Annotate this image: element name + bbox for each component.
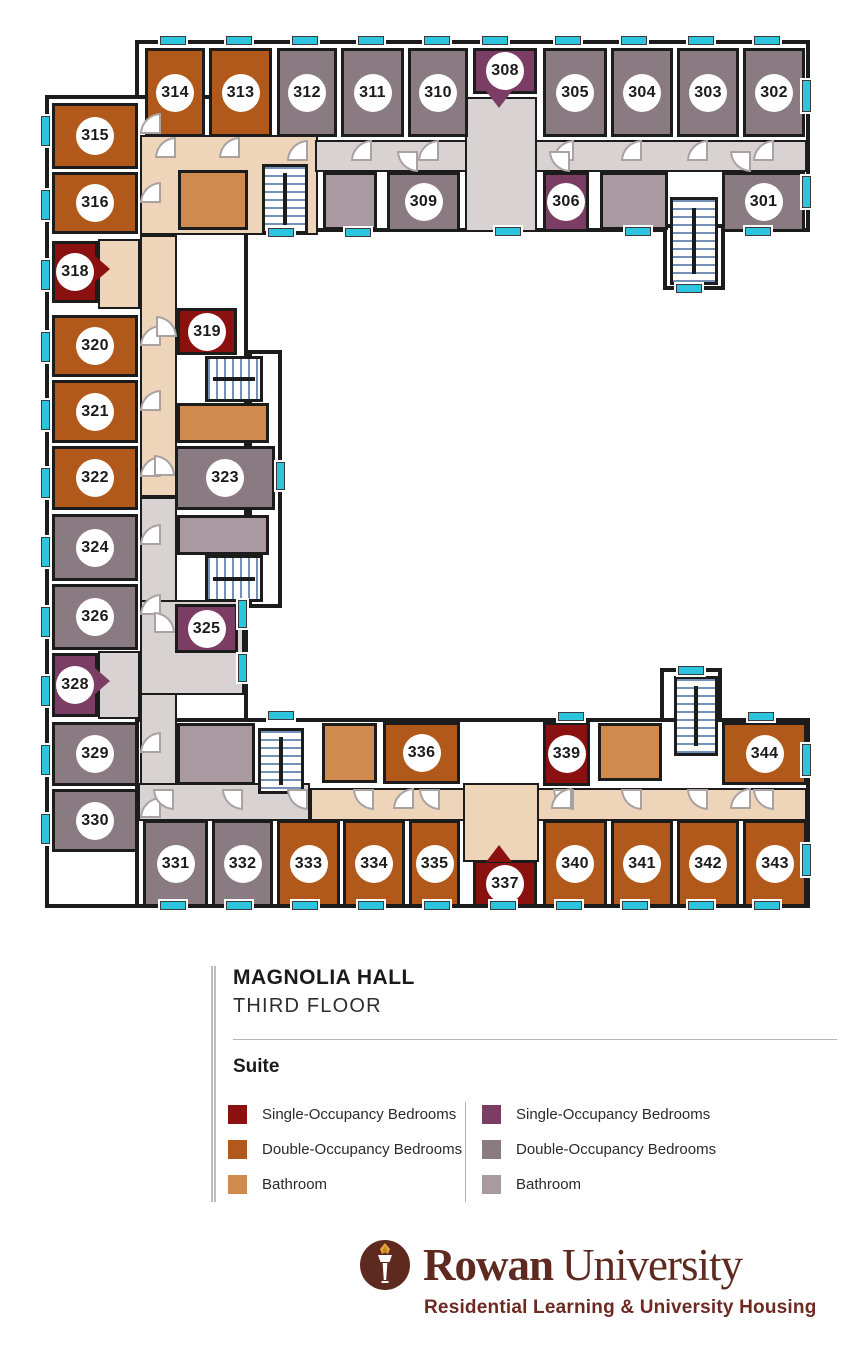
room-302: 302 [743,48,805,137]
room-number-badge: 309 [405,183,443,221]
room-number-badge: 324 [76,529,114,567]
window [802,80,811,112]
room-313: 313 [209,48,272,137]
room-319: 319 [177,308,237,355]
room-303: 303 [677,48,739,137]
legend-label: Double-Occupancy Bedrooms [262,1141,462,1158]
legend-heading: Suite [233,1056,279,1078]
room-number-badge: 326 [76,598,114,636]
room-334: 334 [343,820,405,907]
title-divider [233,1039,837,1040]
room-337: 337 [473,860,537,907]
brand-tagline: Residential Learning & University Housin… [424,1297,817,1319]
room-324: 324 [52,514,138,581]
window [802,176,811,208]
room-322: 322 [52,446,138,510]
window [292,901,318,910]
stair-rail [213,577,255,581]
floor-subtitle: THIRD FLOOR [233,995,382,1018]
room-number-badge: 318 [56,253,94,291]
room-number-badge: 322 [76,459,114,497]
room-321: 321 [52,380,138,443]
room-number-badge: 337 [486,865,524,903]
room-number-badge: 335 [416,845,454,883]
room-number-badge: 302 [755,74,793,112]
window [41,814,50,844]
room-316: 316 [52,172,138,234]
window [358,36,384,45]
room-number-badge: 344 [746,735,784,773]
room-number-badge: 310 [419,74,457,112]
window [555,36,581,45]
stairwell [205,555,263,602]
window [41,116,50,146]
window [41,537,50,567]
room-number-badge: 325 [188,610,226,648]
window [160,36,186,45]
stair-rail [283,173,287,224]
window [802,744,811,776]
room-number-badge: 343 [756,845,794,883]
legend-item: Bathroom [482,1174,716,1194]
room-305: 305 [543,48,607,137]
window [41,745,50,775]
legend-item: Double-Occupancy Bedrooms [482,1139,716,1159]
window [238,654,247,682]
legend-label: Single-Occupancy Bedrooms [262,1106,456,1123]
room-number-badge: 304 [623,74,661,112]
room-number-badge: 320 [76,327,114,365]
window [424,36,450,45]
room-number-badge: 308 [486,52,524,90]
window [558,712,584,721]
suite-hallway [98,239,140,309]
bathroom [600,172,668,230]
window [41,468,50,498]
room-335: 335 [409,820,460,907]
bathroom [598,723,662,781]
room-309: 309 [387,172,460,232]
room-number-badge: 332 [224,845,262,883]
room-number-badge: 313 [222,74,260,112]
window [754,901,780,910]
stairwell [670,197,718,285]
legend-swatch [482,1140,501,1159]
stairwell [205,356,263,402]
window [424,901,450,910]
room-number-badge: 311 [354,74,392,112]
room-number-badge: 315 [76,117,114,155]
room-325: 325 [175,604,238,653]
floor-plan: 3143133123113103083053043033023153163093… [0,0,861,940]
brand-name-secondary: University [562,1240,742,1290]
legend-swatch [228,1175,247,1194]
room-number-badge: 319 [188,313,226,351]
room-number-badge: 306 [547,183,585,221]
room-number-badge: 328 [56,666,94,704]
floor-plan-page: { "header": { "building": "MAGNOLIA HALL… [0,0,861,1352]
room-306: 306 [543,172,589,232]
room-330: 330 [52,789,138,852]
window [802,844,811,876]
legend-column-divider [465,1102,466,1202]
room-304: 304 [611,48,673,137]
window [41,607,50,637]
torch-icon [360,1240,410,1290]
room-number-badge: 336 [403,734,441,772]
suite-hallway [465,97,537,232]
window [358,901,384,910]
window [688,901,714,910]
room-320: 320 [52,315,138,377]
room-number-badge: 334 [355,845,393,883]
room-332: 332 [212,820,273,907]
window [41,190,50,220]
stair-rail [213,377,255,381]
legend-swatch [228,1105,247,1124]
window [41,260,50,290]
room-number-badge: 340 [556,845,594,883]
room-315: 315 [52,103,138,169]
window [276,462,285,490]
room-328: 328 [52,653,98,717]
window [621,36,647,45]
legend-item: Bathroom [228,1174,462,1194]
window [268,228,294,237]
bathroom [177,723,255,785]
window [226,901,252,910]
room-341: 341 [611,820,673,907]
room-number-badge: 333 [290,845,328,883]
room-342: 342 [677,820,739,907]
room-331: 331 [143,820,208,907]
window [745,227,771,236]
room-number-badge: 330 [76,802,114,840]
window [226,36,252,45]
window [292,36,318,45]
window [678,666,704,675]
room-number-badge: 314 [156,74,194,112]
legend-label: Single-Occupancy Bedrooms [516,1106,710,1123]
room-344: 344 [722,722,807,785]
stairwell [674,676,718,756]
room-number-badge: 331 [157,845,195,883]
legend-item: Single-Occupancy Bedrooms [482,1104,716,1124]
brand-name-primary: Rowan [423,1240,553,1290]
room-312: 312 [277,48,337,137]
legend-label: Double-Occupancy Bedrooms [516,1141,716,1158]
room-number-badge: 316 [76,184,114,222]
window [622,901,648,910]
room-308: 308 [473,48,537,94]
legend-swatch [482,1175,501,1194]
window [345,228,371,237]
stair-rail [694,686,698,745]
legend-column-right: Single-Occupancy BedroomsDouble-Occupanc… [482,1104,716,1209]
legend-swatch [482,1105,501,1124]
window [41,676,50,706]
bathroom [177,403,269,443]
rowan-logo: Rowan University [360,1240,742,1290]
room-343: 343 [743,820,807,907]
legend-label: Bathroom [516,1176,581,1193]
bathroom [178,170,248,230]
room-311: 311 [341,48,404,137]
legend-column-left: Single-Occupancy BedroomsDouble-Occupanc… [228,1104,462,1209]
window [490,901,516,910]
window [556,901,582,910]
room-339: 339 [543,722,590,786]
building-title: MAGNOLIA HALL [233,966,415,990]
window [495,227,521,236]
stairwell [262,164,308,234]
room-number-badge: 312 [288,74,326,112]
room-number-badge: 303 [689,74,727,112]
window [625,227,651,236]
room-301: 301 [722,172,805,232]
room-340: 340 [543,820,607,907]
room-number-badge: 339 [548,735,586,773]
legend-label: Bathroom [262,1176,327,1193]
window [238,600,247,628]
window [482,36,508,45]
legend-item: Single-Occupancy Bedrooms [228,1104,462,1124]
room-318: 318 [52,241,98,303]
window [754,36,780,45]
window [688,36,714,45]
window [748,712,774,721]
room-number-badge: 323 [206,459,244,497]
room-326: 326 [52,584,138,650]
window [676,284,702,293]
window [41,400,50,430]
room-number-badge: 342 [689,845,727,883]
room-number-badge: 321 [76,393,114,431]
room-310: 310 [408,48,468,137]
room-number-badge: 301 [745,183,783,221]
bathroom [323,172,377,230]
window [268,711,294,720]
room-number-badge: 329 [76,735,114,773]
room-323: 323 [175,446,275,510]
stair-rail [692,208,696,274]
window [160,901,186,910]
window [41,332,50,362]
room-number-badge: 305 [556,74,594,112]
stairwell [258,728,304,794]
room-336: 336 [383,722,460,784]
room-329: 329 [52,722,138,786]
legend-item: Double-Occupancy Bedrooms [228,1139,462,1159]
bathroom [177,515,269,555]
legend-swatch [228,1140,247,1159]
stair-rail [279,737,283,785]
bathroom [322,723,377,783]
room-333: 333 [277,820,340,907]
room-number-badge: 341 [623,845,661,883]
legend-left-rule [211,966,216,1202]
